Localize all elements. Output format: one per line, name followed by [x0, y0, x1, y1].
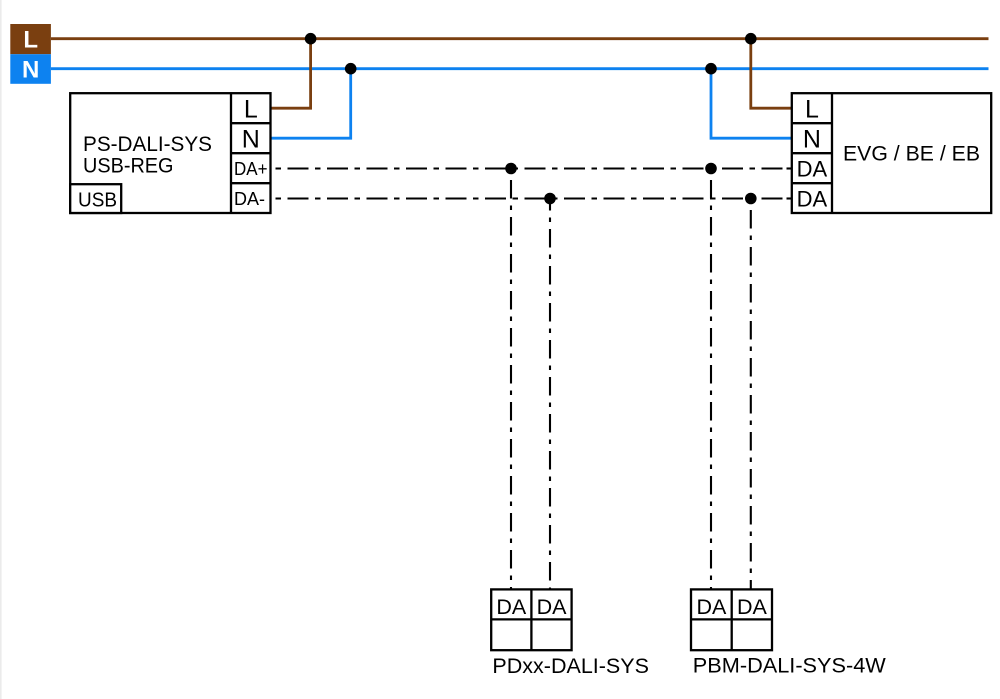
svg-text:N: N [242, 126, 260, 154]
svg-text:N: N [22, 56, 39, 83]
svg-text:DA+: DA+ [234, 158, 268, 179]
svg-text:DA: DA [496, 595, 527, 619]
svg-text:DA: DA [797, 187, 828, 212]
svg-text:DA: DA [797, 157, 828, 182]
svg-text:PBM-DALI-SYS-4W: PBM-DALI-SYS-4W [693, 654, 887, 678]
svg-text:DA: DA [537, 595, 568, 619]
svg-text:DA: DA [696, 595, 727, 619]
svg-text:PS-DALI-SYS: PS-DALI-SYS [83, 133, 212, 156]
svg-text:L: L [805, 96, 819, 124]
svg-text:DA-: DA- [234, 188, 265, 209]
svg-text:L: L [23, 27, 38, 54]
svg-text:N: N [803, 126, 821, 154]
svg-text:L: L [244, 96, 258, 124]
svg-text:USB-REG: USB-REG [83, 154, 174, 177]
svg-text:USB: USB [78, 189, 117, 211]
svg-text:DA: DA [737, 595, 768, 619]
svg-text:PDxx-DALI-SYS: PDxx-DALI-SYS [492, 654, 649, 678]
svg-text:EVG / BE / EB: EVG / BE / EB [843, 143, 980, 166]
